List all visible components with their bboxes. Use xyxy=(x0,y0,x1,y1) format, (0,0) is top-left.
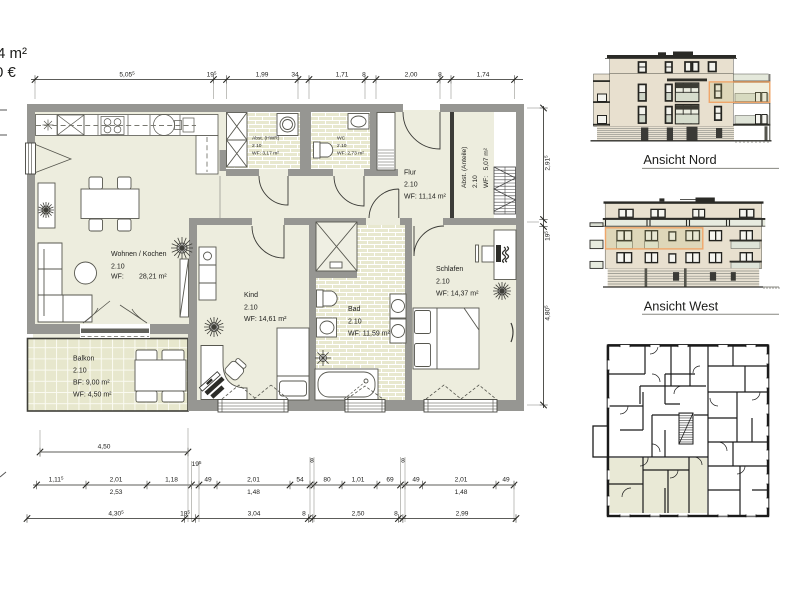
svg-text:WC: WC xyxy=(337,136,346,142)
svg-text:2.10: 2.10 xyxy=(436,279,450,286)
svg-text:2,00: 2,00 xyxy=(405,72,418,79)
svg-text:2,01: 2,01 xyxy=(110,477,123,484)
svg-text:Ansicht Nord: Ansicht Nord xyxy=(643,152,716,167)
svg-text:Kind: Kind xyxy=(244,292,258,299)
svg-text:54: 54 xyxy=(296,477,304,484)
svg-text:8: 8 xyxy=(362,72,366,79)
svg-text:0 €: 0 € xyxy=(0,64,17,81)
svg-text:49: 49 xyxy=(502,477,510,484)
svg-text:1,71: 1,71 xyxy=(336,72,349,79)
svg-text:8: 8 xyxy=(394,511,398,518)
svg-text:2,01: 2,01 xyxy=(455,477,468,484)
svg-text:Abst. (HWR): Abst. (HWR) xyxy=(252,136,280,142)
svg-text:80: 80 xyxy=(323,477,331,484)
svg-text:1,74: 1,74 xyxy=(477,72,490,79)
svg-text:69: 69 xyxy=(386,477,394,484)
svg-text:1,18: 1,18 xyxy=(165,477,178,484)
svg-text:1,48: 1,48 xyxy=(247,489,260,496)
svg-text:Abst. (Anteile): Abst. (Anteile) xyxy=(461,147,468,188)
svg-text:8: 8 xyxy=(401,458,405,465)
svg-text:WF: 11,14 m²: WF: 11,14 m² xyxy=(404,194,447,201)
svg-text:4,50: 4,50 xyxy=(98,444,111,451)
svg-text:3,04: 3,04 xyxy=(248,511,261,518)
svg-text:1,01: 1,01 xyxy=(352,477,365,484)
svg-text:WF: 14,61 m²: WF: 14,61 m² xyxy=(244,316,287,323)
svg-text:Bad: Bad xyxy=(348,306,361,313)
svg-text:2.10: 2.10 xyxy=(252,143,262,149)
svg-text:49: 49 xyxy=(412,477,420,484)
svg-text:Flur: Flur xyxy=(404,170,417,177)
svg-text:8: 8 xyxy=(310,458,314,465)
svg-text:1,99: 1,99 xyxy=(256,72,269,79)
svg-text:2.10: 2.10 xyxy=(73,368,87,375)
svg-text:2.10: 2.10 xyxy=(244,305,258,312)
svg-text:2.10: 2.10 xyxy=(472,175,479,188)
svg-text:4 m²: 4 m² xyxy=(0,45,27,62)
svg-text:Schlafen: Schlafen xyxy=(436,266,463,273)
svg-text:Balkon: Balkon xyxy=(73,356,95,363)
svg-text:WF:: WF: xyxy=(111,274,124,281)
svg-text:2,53: 2,53 xyxy=(110,489,123,496)
svg-text:Ansicht West: Ansicht West xyxy=(644,299,719,314)
svg-text:Wohnen / Kochen: Wohnen / Kochen xyxy=(111,251,167,258)
svg-text:49: 49 xyxy=(204,477,212,484)
svg-text:WF: 5,07 m²: WF: 5,07 m² xyxy=(483,147,490,188)
svg-text:WF: 3,17 m²: WF: 3,17 m² xyxy=(252,151,279,157)
svg-text:WF: 14,37 m²: WF: 14,37 m² xyxy=(436,291,479,298)
svg-text:28,21 m²: 28,21 m² xyxy=(139,274,167,281)
svg-text:2,99: 2,99 xyxy=(456,511,469,518)
svg-text:2,01: 2,01 xyxy=(247,477,260,484)
svg-text:2.10: 2.10 xyxy=(348,319,362,326)
svg-text:2,50: 2,50 xyxy=(352,511,365,518)
svg-text:2.10: 2.10 xyxy=(337,143,347,149)
svg-text:2.10: 2.10 xyxy=(404,182,418,189)
svg-text:WF: 2,73 m²: WF: 2,73 m² xyxy=(337,151,364,157)
svg-text:2.10: 2.10 xyxy=(111,264,125,271)
svg-text:34: 34 xyxy=(291,72,299,79)
svg-text:1,48: 1,48 xyxy=(455,489,468,496)
svg-text:BF: 9,00 m²: BF: 9,00 m² xyxy=(73,380,110,387)
svg-text:WF: 4,50 m²: WF: 4,50 m² xyxy=(73,392,112,399)
svg-text:WF: 11,59 m²: WF: 11,59 m² xyxy=(348,331,391,338)
svg-text:8: 8 xyxy=(438,72,442,79)
svg-text:8: 8 xyxy=(302,511,306,518)
